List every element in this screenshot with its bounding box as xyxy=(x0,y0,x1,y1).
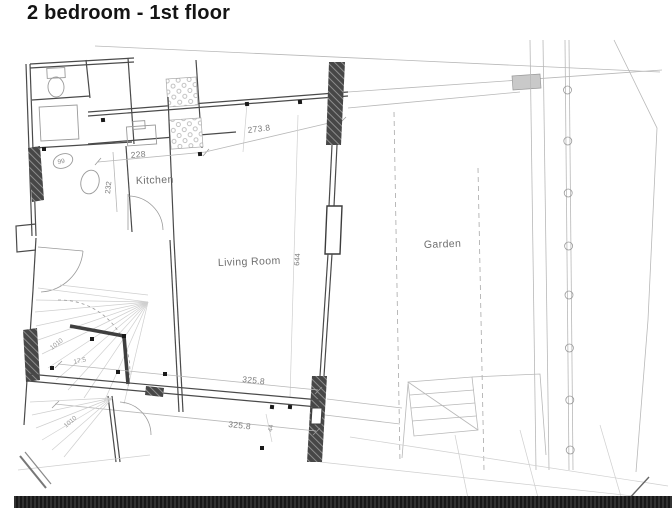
bathroom-fixtures: 99 xyxy=(51,151,102,196)
window xyxy=(325,206,342,254)
floor-plan-drawing: 99 xyxy=(0,0,672,510)
toilet-icon xyxy=(47,68,65,98)
lower-door-arc xyxy=(120,402,151,435)
svg-text:644: 644 xyxy=(292,253,302,266)
fence-line xyxy=(564,40,575,470)
svg-text:325.8: 325.8 xyxy=(228,419,252,431)
kitchen-label: Kitchen xyxy=(136,174,174,187)
garden-label: Garden xyxy=(424,238,462,251)
dim-44: 44 xyxy=(266,414,275,442)
svg-text:232: 232 xyxy=(103,181,113,194)
svg-text:228: 228 xyxy=(130,149,146,160)
dim-325-8-upper: 325.8 xyxy=(55,361,322,394)
stair-tread-note: 17.5 xyxy=(73,356,87,366)
stairs-upper: 1010 17.5 xyxy=(23,238,183,425)
pier-window-gap xyxy=(311,408,322,424)
wall-pier-top xyxy=(326,62,345,145)
mark-99: 99 xyxy=(57,158,66,166)
entrance-door xyxy=(16,224,83,292)
shower-icon xyxy=(39,105,79,141)
footer-bar xyxy=(14,496,672,508)
east-wall xyxy=(307,62,345,462)
dim-228: 228 xyxy=(95,149,209,165)
tile-patch-upper xyxy=(166,77,198,107)
svg-text:273.8: 273.8 xyxy=(247,122,271,135)
kitchen-area: 228 273.8 232 Kitchen xyxy=(88,60,348,240)
living-room-label: Living Room xyxy=(218,255,281,269)
band-hatch-block xyxy=(145,386,164,397)
tile-patch-lower xyxy=(169,118,203,149)
sidewalk-lines xyxy=(320,425,670,508)
top-left-rooms: 99 xyxy=(26,58,163,236)
floor-plan-page: 2 bedroom - 1st floor xyxy=(0,0,672,510)
svg-text:44: 44 xyxy=(267,424,275,433)
svg-text:325.8: 325.8 xyxy=(242,374,266,386)
garden-area xyxy=(320,40,670,508)
dim-273-8: 273.8 xyxy=(205,117,346,152)
living-room-area: Living Room 644 xyxy=(218,115,302,398)
dim-644: 644 xyxy=(290,115,302,398)
bottom-wall-band: 325.8 325.8 44 xyxy=(28,361,402,442)
stair-treads-lower xyxy=(30,398,112,457)
garden-gate-block xyxy=(512,74,541,90)
bathroom-door-arc xyxy=(128,194,163,230)
stair-note-lower: 1010 xyxy=(63,415,79,430)
stair-note-upper: 1010 xyxy=(49,337,65,352)
